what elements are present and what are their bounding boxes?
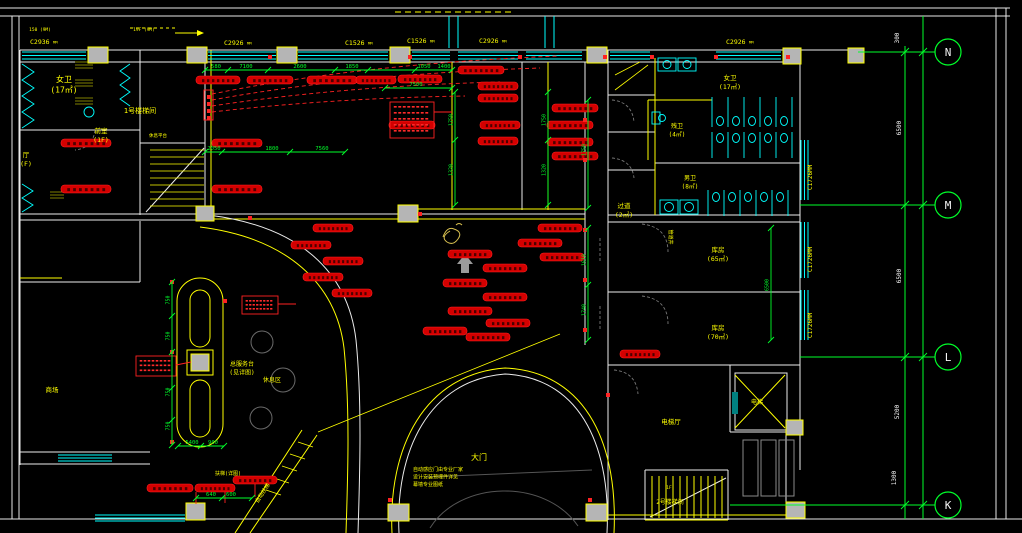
grid-dim-text: 300 — [894, 32, 901, 43]
device-label-text: ▮▮▮▮▮▮▮ — [312, 78, 353, 84]
window-tag-suffix: MM — [53, 40, 58, 45]
note-line: ▪▪▪▪▪▪▪▪ — [393, 104, 430, 109]
room-label: 1号楼梯间 — [124, 106, 156, 115]
window-tag: C2926 — [224, 39, 244, 47]
device-dot — [207, 102, 211, 106]
device-label-text: ▮▮▮▮▮▮▮ — [201, 78, 236, 84]
room-label: 商场 — [46, 385, 60, 394]
room-label: (17㎡) — [719, 82, 741, 91]
dim-text: 1850 — [345, 64, 358, 70]
device-label-text: ▮▮▮▮▮▮▮ — [217, 141, 258, 147]
dim-text: 1400 — [437, 64, 450, 70]
device-dot — [268, 55, 272, 59]
window-tag: C1526 — [345, 39, 365, 47]
device-dot — [418, 212, 422, 216]
dim-text: 2050 — [207, 146, 220, 152]
window-tag: C1526 — [407, 37, 427, 45]
device-dot — [603, 55, 607, 59]
room-label: (4㎡) — [669, 131, 686, 139]
device-dot — [248, 216, 252, 220]
window-tag-suffix: MM — [247, 41, 252, 46]
device-dot — [714, 55, 718, 59]
device-label-text: ▮▮▮▮▮▮▮ — [483, 139, 514, 145]
room-label: (8㎡) — [682, 183, 699, 191]
device-label-text: ▮▮▮▮▮▮▮ — [488, 266, 523, 272]
dim-text: 900 — [208, 440, 218, 446]
dim-text: 1800 — [265, 146, 278, 152]
device-label-text: ▮▮▮▮▮▮▮ — [453, 252, 488, 258]
device-label-text: ▮▮▮▮▮▮▮ — [463, 68, 500, 74]
device-dot — [408, 55, 412, 59]
room-label: 幕墙专业图纸 — [413, 481, 443, 488]
device-label-text: ▮▮▮▮▮▮▮ — [543, 226, 578, 232]
dim-text: 1320 — [542, 164, 548, 176]
device-dot — [223, 299, 227, 303]
device-label-text: ▮▮▮▮▮▮▮ — [545, 255, 580, 261]
room-label: 厅 — [23, 151, 30, 159]
floor-plan-canvas: ▮▮▮▮▮▮▮▮▮▮▮▮▮▮▮▮▮▮▮▮▮▮▮▮▮▮▮▮▮▮▮▮▮▮▮▮▮▮▮▮… — [0, 0, 1022, 533]
device-label-text: ▮▮▮▮▮▮▮ — [217, 187, 258, 193]
note-line: ▪▪▪▪▪▪▪▪ — [393, 116, 430, 121]
dim-text: 750 — [166, 295, 172, 304]
room-label: 前室 — [95, 126, 109, 135]
window-tag: C2926 — [726, 38, 746, 46]
room-label: 女卫 — [56, 74, 72, 84]
room-label: 电梯 — [751, 398, 763, 406]
dim-text: 1740 — [582, 304, 588, 316]
grid-letter: K — [945, 499, 952, 512]
dim-text: 7100 — [239, 64, 252, 70]
note-line: ▪▪▪▪▪▪▪▪ — [393, 110, 430, 115]
device-dot — [583, 118, 587, 122]
device-dot — [207, 116, 211, 120]
dim-text: 1050 — [417, 64, 430, 70]
device-dot — [583, 158, 587, 162]
dim-text: 640 — [206, 492, 216, 498]
device-label-text: ▮▮▮▮▮▮▮ — [361, 78, 392, 84]
window-tag-suffix: MM — [749, 40, 754, 45]
dim-text: 6500 — [765, 279, 771, 291]
room-label: (17㎡) — [50, 86, 77, 95]
room-label: 休息区 — [263, 376, 281, 384]
device-label-text: ▮▮▮▮▮▮▮ — [318, 226, 349, 232]
room-label: 管道井 — [667, 229, 674, 244]
device-label-text: ▮▮▮▮▮▮▮ — [483, 96, 514, 102]
dim-text: 750 — [166, 331, 172, 340]
device-dot — [518, 55, 522, 59]
device-dot — [388, 498, 392, 502]
device-label-text: ▮▮▮▮▮▮▮ — [152, 486, 189, 492]
device-label-text: ▮▮▮▮▮▮▮ — [491, 321, 526, 327]
room-label: (F) — [20, 160, 32, 168]
dim-text: 7500 — [409, 82, 422, 88]
room-label: 自动感应门由专业厂家 — [413, 466, 463, 473]
room-label: 库房 — [712, 245, 725, 254]
device-dot — [583, 278, 587, 282]
room-label: 150 (9M) — [29, 27, 51, 33]
device-dot — [606, 393, 610, 397]
device-label-text: ▮▮▮▮▮▮▮ — [625, 352, 656, 358]
note-line: ▪▪▪▪▪▪▪▪ — [245, 306, 274, 311]
dim-text: 1750 — [582, 144, 588, 156]
device-label-text: ▮▮▮▮▮▮▮ — [308, 275, 339, 281]
dim-text: 1750 — [449, 114, 455, 126]
window-tag-vertical: C1726MM — [807, 246, 814, 272]
room-label: 19F (9M) — [133, 27, 155, 33]
room-label: 休息平台 — [149, 132, 167, 139]
device-dot — [650, 55, 654, 59]
room-label: 电梯厅 — [661, 417, 681, 426]
dim-text: 2600 — [293, 64, 306, 70]
room-label: (65㎡) — [707, 254, 729, 263]
room-label: (2㎡) — [615, 210, 633, 219]
grid-letter: N — [945, 46, 952, 59]
note-line: ▪▪▪▪▪▪▪▪ — [393, 128, 430, 133]
device-dot — [786, 55, 790, 59]
grid-dim-text: 5200 — [894, 404, 901, 419]
device-label-text: ▮▮▮▮▮▮▮ — [471, 335, 506, 341]
device-dot — [588, 498, 592, 502]
room-label: 扶梯(详图) — [215, 470, 241, 477]
device-label-text: ▮▮▮▮▮▮▮ — [66, 187, 107, 193]
room-label: 2号楼梯间 — [656, 498, 684, 506]
window-tag-suffix: MM — [368, 41, 373, 46]
grid-letter: M — [945, 199, 952, 212]
window-tag-vertical: C1726MM — [807, 164, 814, 190]
room-label: 总服务台 — [230, 360, 254, 368]
device-label-text: ▮▮▮▮▮▮▮ — [485, 123, 516, 129]
room-label: 男卫 — [684, 175, 696, 182]
window-tag-vertical: C1726MM — [807, 312, 814, 338]
room-label: 1F — [666, 485, 672, 491]
device-label-text: ▮▮▮▮▮▮▮ — [483, 84, 514, 90]
room-label: 大门 — [471, 452, 487, 462]
room-label: 库房 — [712, 323, 725, 332]
dim-text: 7560 — [315, 146, 328, 152]
dim-text: 5400 — [185, 440, 198, 446]
room-label: (1F) — [93, 136, 109, 144]
dim-text: 1320 — [449, 164, 455, 176]
dim-text: 1610 — [582, 254, 588, 266]
device-dot — [583, 328, 587, 332]
device-dot — [207, 95, 211, 99]
note-line: ▪▪▪▪▪▪▪▪ — [393, 122, 430, 127]
window-tag: C2936 — [30, 38, 50, 46]
window-tag-suffix: MM — [502, 39, 507, 44]
device-label-text: ▮▮▮▮▮▮▮ — [428, 329, 463, 335]
dim-text: 600 — [226, 492, 236, 498]
device-label-text: ▮▮▮▮▮▮▮ — [252, 78, 289, 84]
window-tag: C2926 — [479, 37, 499, 45]
device-label-text: ▮▮▮▮▮▮▮ — [337, 291, 368, 297]
grid-letter: L — [945, 351, 952, 364]
grid-dim-text: 6500 — [896, 120, 903, 135]
device-dot — [207, 109, 211, 113]
device-label-text: ▮▮▮▮▮▮▮ — [523, 241, 558, 247]
dim-text: 580 — [211, 64, 221, 70]
device-label-text: ▮▮▮▮▮▮▮ — [453, 309, 488, 315]
room-label: 设计安装预埋件详见 — [413, 474, 458, 481]
device-label-text: ▮▮▮▮▮▮▮ — [552, 123, 589, 129]
device-label-text: ▮▮▮▮▮▮▮ — [488, 295, 523, 301]
grid-dim-text: 1300 — [891, 470, 898, 485]
note-line: ▪▪▪▪▪▪▪▪ — [139, 367, 172, 372]
window-tag-suffix: MM — [430, 39, 435, 44]
cad-viewport: ▮▮▮▮▮▮▮▮▮▮▮▮▮▮▮▮▮▮▮▮▮▮▮▮▮▮▮▮▮▮▮▮▮▮▮▮▮▮▮▮… — [0, 0, 1022, 533]
dim-text: 750 — [166, 387, 172, 396]
device-label-text: ▮▮▮▮▮▮▮ — [296, 243, 327, 249]
device-label-text: ▮▮▮▮▮▮▮ — [448, 281, 483, 287]
dim-text: 1750 — [542, 114, 548, 126]
room-label: 残卫 — [671, 122, 683, 130]
room-label: 女卫 — [724, 73, 738, 82]
dim-text: 750 — [166, 421, 172, 430]
room-label: 过道 — [618, 201, 632, 210]
device-label-text: ▮▮▮▮▮▮▮ — [328, 259, 359, 265]
room-label: (见详图) — [229, 369, 254, 377]
grid-dim-text: 6500 — [896, 268, 903, 283]
room-label: (70㎡) — [707, 332, 729, 341]
